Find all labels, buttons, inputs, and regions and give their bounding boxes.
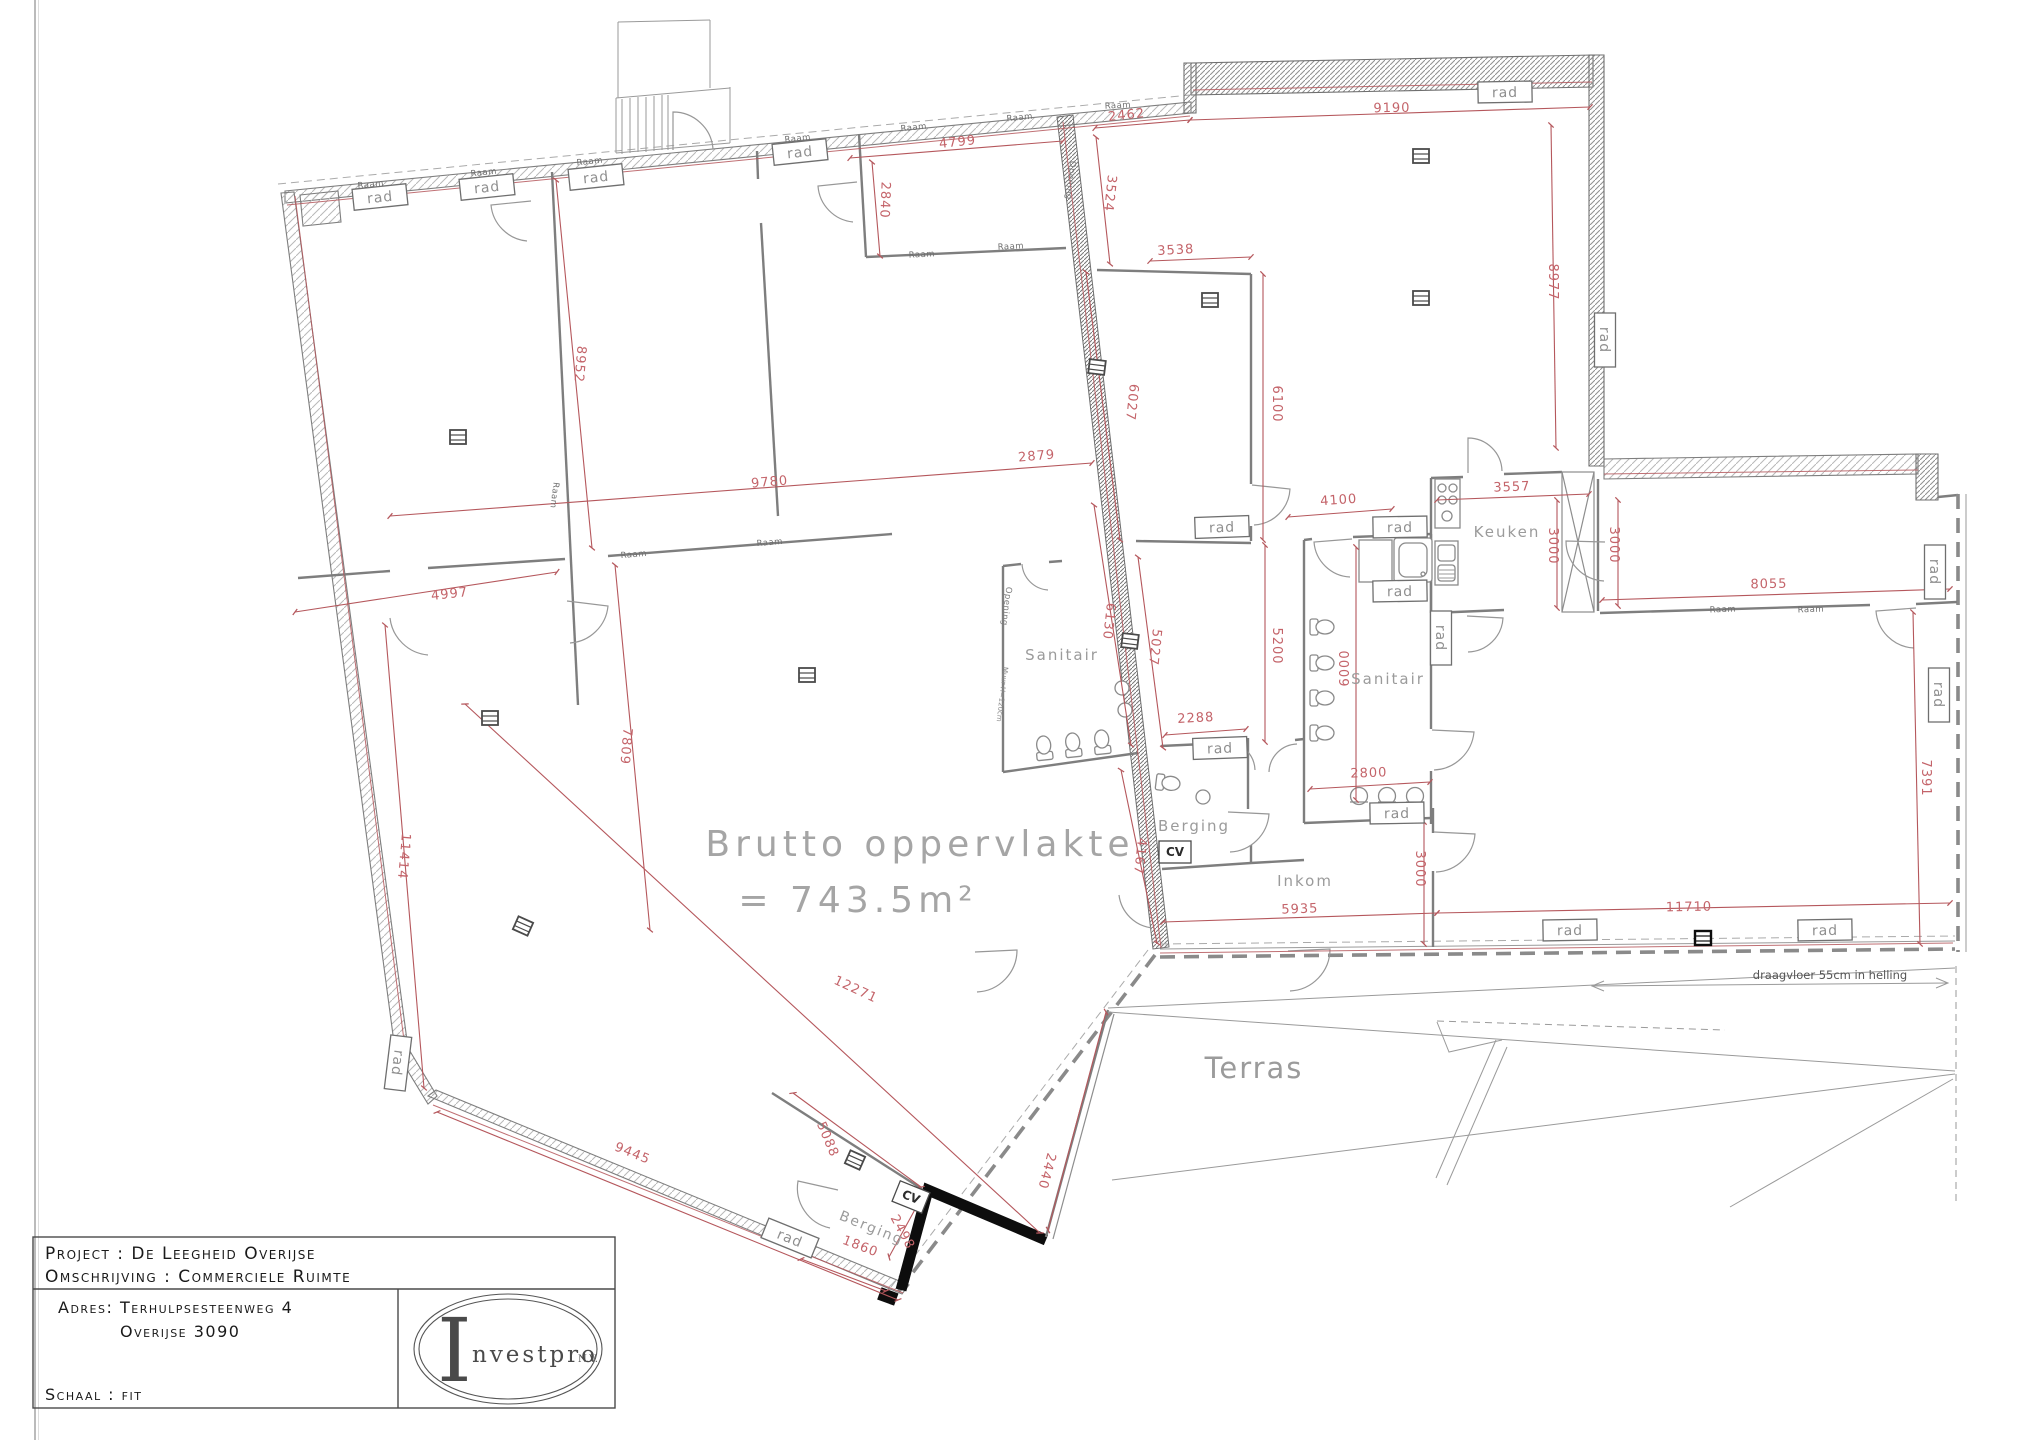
rad-box: rad xyxy=(1478,81,1532,103)
rad-boxes: radradradradradradradradradradradradradr… xyxy=(352,81,1949,1258)
ramp-and-terras xyxy=(1108,966,1956,1207)
cv-box: CV xyxy=(1159,841,1191,863)
raam-label: Raam xyxy=(908,249,935,260)
raam-label: Raam xyxy=(997,241,1024,252)
rad-box: rad xyxy=(1431,611,1452,665)
terras-label: Terras xyxy=(1204,1051,1304,1085)
rad-label: rad xyxy=(582,169,610,188)
schaal-label: Schaal : fit xyxy=(45,1385,142,1404)
rad-label: rad xyxy=(1492,85,1519,101)
raam-label: Raam xyxy=(1798,605,1825,616)
dimension-label: 3000 xyxy=(1412,850,1427,887)
dimension-label: 2800 xyxy=(1350,765,1388,781)
dimension-label: 12271 xyxy=(831,973,879,1006)
muur-note: Muur H=120cm xyxy=(995,666,1010,722)
column-icon xyxy=(1413,149,1429,163)
project-label: Project : De Leegheid Overijse xyxy=(45,1244,316,1264)
rad-label: rad xyxy=(366,189,394,208)
rad-box: rad xyxy=(1543,919,1597,941)
rad-label: rad xyxy=(1387,584,1414,600)
dimension-label: 2440 xyxy=(1034,1151,1058,1191)
beam-icon xyxy=(1695,931,1711,945)
dimension-label: 11414 xyxy=(394,833,413,880)
dimension-label: 3524 xyxy=(1100,174,1119,212)
dimension-label: 2879 xyxy=(1018,447,1056,465)
omschrijving-label: Omschrijving : Commerciele Ruimte xyxy=(45,1267,351,1287)
column-icon xyxy=(1413,291,1429,305)
adres-line2: Overijse 3090 xyxy=(120,1322,240,1341)
dimension-label: 3000 xyxy=(1606,526,1621,563)
floor-plan: 2462919035243538897747992840895297802879… xyxy=(0,0,2036,1440)
dimension-labels: 2462919035243538897747992840895297802879… xyxy=(394,101,1933,1261)
column-icon xyxy=(1202,293,1218,307)
cv-label: CV xyxy=(1166,845,1185,859)
opening-label: Opening xyxy=(999,586,1014,626)
rad-label: rad xyxy=(786,144,814,163)
rad-box: rad xyxy=(761,1218,819,1258)
column-icon xyxy=(1121,633,1139,649)
rad-label: rad xyxy=(1207,741,1234,758)
dimension-label: 4799 xyxy=(938,133,976,152)
room-label: Keuken xyxy=(1474,523,1541,541)
walls xyxy=(278,20,1966,1306)
dimension-label: 8055 xyxy=(1750,577,1787,593)
room-label: Sanitair xyxy=(1351,670,1425,688)
rad-box: rad xyxy=(1925,545,1946,599)
dimension-label: 4997 xyxy=(430,585,468,604)
rad-box: rad xyxy=(1195,516,1250,539)
dimension-label: 9445 xyxy=(612,1140,652,1168)
dimension-label: 6100 xyxy=(1269,385,1284,422)
dimension-label: 2840 xyxy=(876,181,892,219)
dimension-label: 6130 xyxy=(1099,602,1118,640)
column-icon xyxy=(450,430,466,444)
rad-label: rad xyxy=(1384,806,1411,822)
room-label: Berging xyxy=(1158,817,1230,835)
rad-label: rad xyxy=(1930,682,1946,708)
column-icon xyxy=(799,668,815,682)
raam-label: Raam xyxy=(620,549,647,561)
rad-label: rad xyxy=(1596,327,1612,353)
logo-suffix: N.V. xyxy=(578,1354,598,1365)
dimension-label: 4100 xyxy=(1320,492,1358,510)
rad-label: rad xyxy=(1387,520,1414,536)
rad-box: rad xyxy=(1798,919,1852,941)
ramp-note: draagvloer 55cm in helling xyxy=(1753,968,1907,982)
raam-label: Raam xyxy=(1710,605,1737,616)
rad-box: rad xyxy=(1595,313,1616,367)
dimension-label: 3000 xyxy=(1545,527,1560,564)
raam-label: Raam xyxy=(547,482,560,509)
dimension-label: 8977 xyxy=(1545,263,1560,300)
rad-box: rad xyxy=(1193,737,1248,760)
title-block: Project : De Leegheid Overijse Omschrijv… xyxy=(33,1237,615,1408)
column-icon xyxy=(513,916,533,935)
area-label-line1: Brutto oppervlakte xyxy=(705,824,1134,865)
investpro-logo-icon: I nvestpro N.V. xyxy=(414,1294,602,1404)
rad-box: rad xyxy=(384,1035,411,1091)
rad-label: rad xyxy=(1812,923,1839,939)
logo-initial: I xyxy=(437,1299,472,1402)
dimension-label: 9780 xyxy=(751,473,789,491)
rad-box: rad xyxy=(1373,516,1427,538)
dimension-label: 11710 xyxy=(1666,900,1713,916)
rad-label: rad xyxy=(1557,923,1584,939)
rad-box: rad xyxy=(1373,580,1427,602)
rad-box: rad xyxy=(1370,802,1424,824)
dimension-label: 7391 xyxy=(1918,759,1933,796)
column-icon xyxy=(482,711,498,725)
room-label: Sanitair xyxy=(1025,646,1099,664)
room-label: Inkom xyxy=(1277,872,1333,890)
adres-line1: Adres: Terhulpsesteenweg 4 xyxy=(58,1298,293,1317)
dimension-label: 6027 xyxy=(1122,383,1141,421)
dimension-label: 3538 xyxy=(1157,242,1195,259)
area-label-line2: = 743.5m² xyxy=(738,880,977,921)
dimension-label: 3557 xyxy=(1493,479,1531,495)
rad-label: rad xyxy=(1209,520,1236,537)
rad-box: rad xyxy=(1929,668,1950,722)
raam-label: Raam xyxy=(1104,100,1131,111)
dimension-label: 7809 xyxy=(616,727,634,765)
dimension-label: 9190 xyxy=(1373,101,1410,117)
rad-label: rad xyxy=(1926,559,1942,585)
drawing-page: 2462919035243538897747992840895297802879… xyxy=(0,0,2036,1440)
rad-label: rad xyxy=(473,179,501,198)
column-icon xyxy=(845,1150,865,1169)
dimension-label: 2288 xyxy=(1177,710,1215,727)
raam-label: Raam xyxy=(756,537,783,549)
dimension-label: 5200 xyxy=(1269,627,1284,664)
column-icon xyxy=(1088,359,1106,375)
rad-label: rad xyxy=(1432,625,1448,651)
rad-label: rad xyxy=(387,1049,406,1077)
dimension-label: 5935 xyxy=(1281,901,1319,917)
